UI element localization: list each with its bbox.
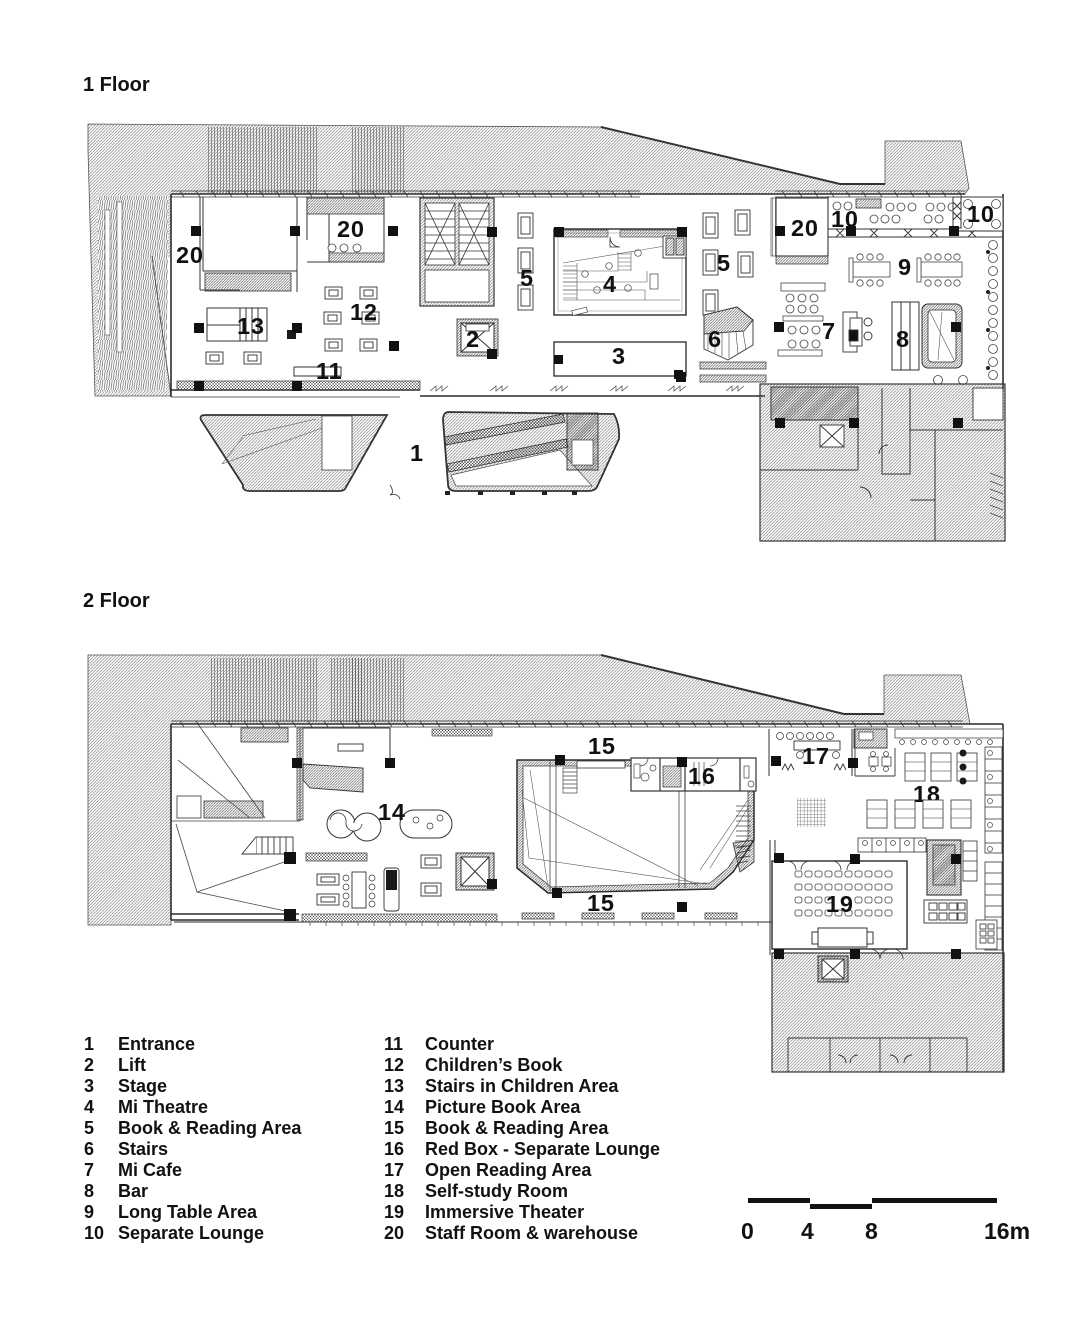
svg-text:Entrance: Entrance xyxy=(118,1034,195,1054)
svg-text:17: 17 xyxy=(802,743,830,769)
svg-text:18: 18 xyxy=(384,1181,404,1201)
svg-text:Picture Book Area: Picture Book Area xyxy=(425,1097,581,1117)
svg-text:20: 20 xyxy=(337,216,365,242)
svg-text:4: 4 xyxy=(84,1097,94,1117)
svg-text:Book & Reading Area: Book & Reading Area xyxy=(425,1118,609,1138)
svg-text:Lift: Lift xyxy=(118,1055,146,1075)
svg-text:15: 15 xyxy=(588,733,616,759)
svg-text:13: 13 xyxy=(237,313,265,339)
svg-text:16m: 16m xyxy=(984,1218,1030,1244)
svg-text:Separate Lounge: Separate Lounge xyxy=(118,1223,264,1243)
svg-text:8: 8 xyxy=(865,1218,878,1244)
svg-text:Bar: Bar xyxy=(118,1181,148,1201)
svg-text:10: 10 xyxy=(84,1223,104,1243)
svg-text:Immersive Theater: Immersive Theater xyxy=(425,1202,584,1222)
svg-text:6: 6 xyxy=(708,326,722,352)
svg-text:Stairs in Children Area: Stairs in Children Area xyxy=(425,1076,619,1096)
svg-text:1 Floor: 1 Floor xyxy=(83,74,150,96)
svg-text:15: 15 xyxy=(384,1118,404,1138)
svg-text:19: 19 xyxy=(384,1202,404,1222)
svg-text:8: 8 xyxy=(84,1181,94,1201)
svg-text:Counter: Counter xyxy=(425,1034,494,1054)
svg-text:Mi Theatre: Mi Theatre xyxy=(118,1097,208,1117)
svg-text:2: 2 xyxy=(466,326,480,352)
svg-text:3: 3 xyxy=(84,1076,94,1096)
svg-text:20: 20 xyxy=(384,1223,404,1243)
svg-text:8: 8 xyxy=(896,326,910,352)
svg-text:14: 14 xyxy=(384,1097,404,1117)
svg-text:Self-study Room: Self-study Room xyxy=(425,1181,568,1201)
svg-text:7: 7 xyxy=(84,1160,94,1180)
svg-text:1: 1 xyxy=(410,440,424,466)
svg-text:5: 5 xyxy=(520,265,534,291)
svg-text:12: 12 xyxy=(350,299,378,325)
svg-text:16: 16 xyxy=(384,1139,404,1159)
svg-text:Mi Cafe: Mi Cafe xyxy=(118,1160,182,1180)
svg-text:9: 9 xyxy=(898,254,912,280)
svg-text:14: 14 xyxy=(378,799,406,825)
svg-text:Stairs: Stairs xyxy=(118,1139,168,1159)
svg-text:Long Table Area: Long Table Area xyxy=(118,1202,258,1222)
svg-text:4: 4 xyxy=(801,1218,814,1244)
svg-text:7: 7 xyxy=(822,318,836,344)
svg-text:11: 11 xyxy=(316,358,342,384)
svg-text:15: 15 xyxy=(587,890,615,916)
svg-text:17: 17 xyxy=(384,1160,404,1180)
svg-text:2: 2 xyxy=(84,1055,94,1075)
svg-text:0: 0 xyxy=(741,1218,754,1244)
svg-text:Open Reading Area: Open Reading Area xyxy=(425,1160,592,1180)
svg-text:16: 16 xyxy=(688,763,716,789)
svg-text:2 Floor: 2 Floor xyxy=(83,590,150,612)
svg-text:19: 19 xyxy=(826,891,854,917)
svg-text:5: 5 xyxy=(717,250,731,276)
svg-text:Stage: Stage xyxy=(118,1076,167,1096)
svg-text:20: 20 xyxy=(791,215,819,241)
svg-text:Staff Room & warehouse: Staff Room & warehouse xyxy=(425,1223,638,1243)
svg-text:10: 10 xyxy=(967,201,995,227)
svg-text:9: 9 xyxy=(84,1202,94,1222)
svg-text:Children’s Book: Children’s Book xyxy=(425,1055,563,1075)
svg-text:Red Box - Separate Lounge: Red Box - Separate Lounge xyxy=(425,1139,660,1159)
svg-text:Book & Reading Area: Book & Reading Area xyxy=(118,1118,302,1138)
svg-text:1: 1 xyxy=(84,1034,94,1054)
svg-text:13: 13 xyxy=(384,1076,404,1096)
svg-text:5: 5 xyxy=(84,1118,94,1138)
svg-text:12: 12 xyxy=(384,1055,404,1075)
svg-text:3: 3 xyxy=(612,343,626,369)
svg-text:20: 20 xyxy=(176,242,204,268)
svg-text:11: 11 xyxy=(384,1034,403,1054)
svg-text:6: 6 xyxy=(84,1139,94,1159)
svg-text:4: 4 xyxy=(603,271,617,297)
